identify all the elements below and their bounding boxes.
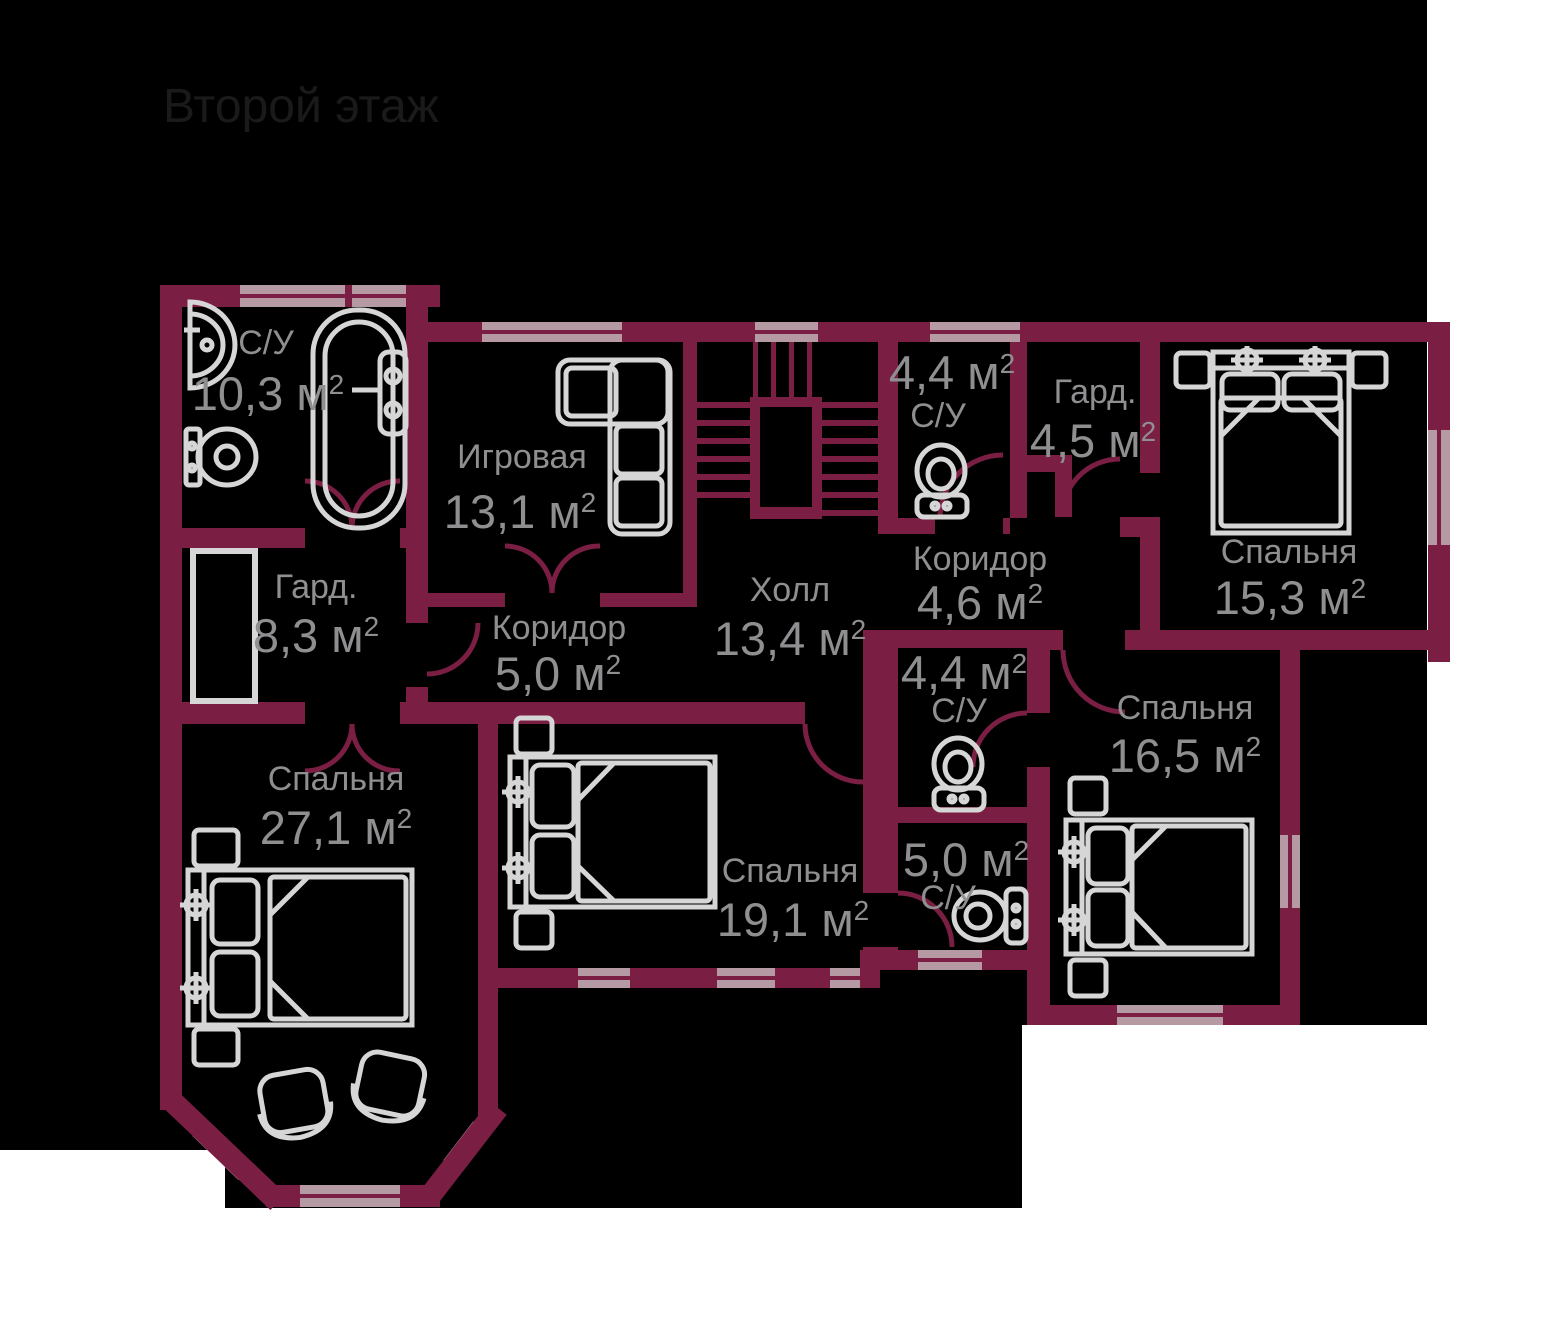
- room-label-spalnya-27-1: Спальня 27,1 м2: [260, 760, 412, 854]
- svg-text:13,4 м2: 13,4 м2: [714, 612, 866, 665]
- svg-text:4,5 м2: 4,5 м2: [1030, 414, 1156, 467]
- room-name: Коридор: [913, 540, 1047, 578]
- room-name: С/У: [238, 324, 294, 362]
- svg-text:5,0 м2: 5,0 м2: [495, 647, 621, 700]
- room-name: Холл: [750, 571, 830, 609]
- page-title: Второй этаж: [163, 80, 439, 133]
- room-label-spalnya-19-1: Спальня 19,1 м2: [717, 852, 869, 946]
- svg-text:13,1 м2: 13,1 м2: [444, 485, 596, 538]
- svg-text:4,6 м2: 4,6 м2: [917, 576, 1043, 629]
- room-label-spalnya-15-3: Спальня 15,3 м2: [1214, 533, 1366, 624]
- floor-plan: Второй этаж: [0, 0, 1558, 1342]
- room-name: Спальня: [1117, 689, 1254, 727]
- room-label-koridor-4-6: Коридор 4,6 м2: [913, 540, 1047, 629]
- svg-text:19,1 м2: 19,1 м2: [717, 893, 869, 946]
- svg-text:16,5 м2: 16,5 м2: [1109, 729, 1261, 782]
- floor-plan-page: Второй этаж: [0, 0, 1558, 1342]
- svg-text:4,4 м2: 4,4 м2: [889, 346, 1015, 399]
- svg-text:15,3 м2: 15,3 м2: [1214, 571, 1366, 624]
- svg-text:10,3 м2: 10,3 м2: [192, 367, 344, 420]
- room-name: С/У: [931, 692, 987, 730]
- room-name: Спальня: [722, 852, 859, 890]
- room-name: С/У: [920, 879, 976, 917]
- svg-text:27,1 м2: 27,1 м2: [260, 801, 412, 854]
- room-label-igrovaya: Игровая 13,1 м2: [444, 438, 596, 538]
- svg-text:8,3 м2: 8,3 м2: [253, 609, 379, 662]
- room-name: Спальня: [1221, 533, 1358, 571]
- room-name: Игровая: [457, 438, 587, 476]
- room-name: Гард.: [1054, 373, 1137, 411]
- room-label-spalnya-16-5: Спальня 16,5 м2: [1109, 689, 1261, 782]
- room-name: С/У: [910, 397, 966, 435]
- room-name: Спальня: [268, 760, 405, 798]
- room-name: Коридор: [492, 609, 626, 647]
- room-name: Гард.: [275, 568, 358, 606]
